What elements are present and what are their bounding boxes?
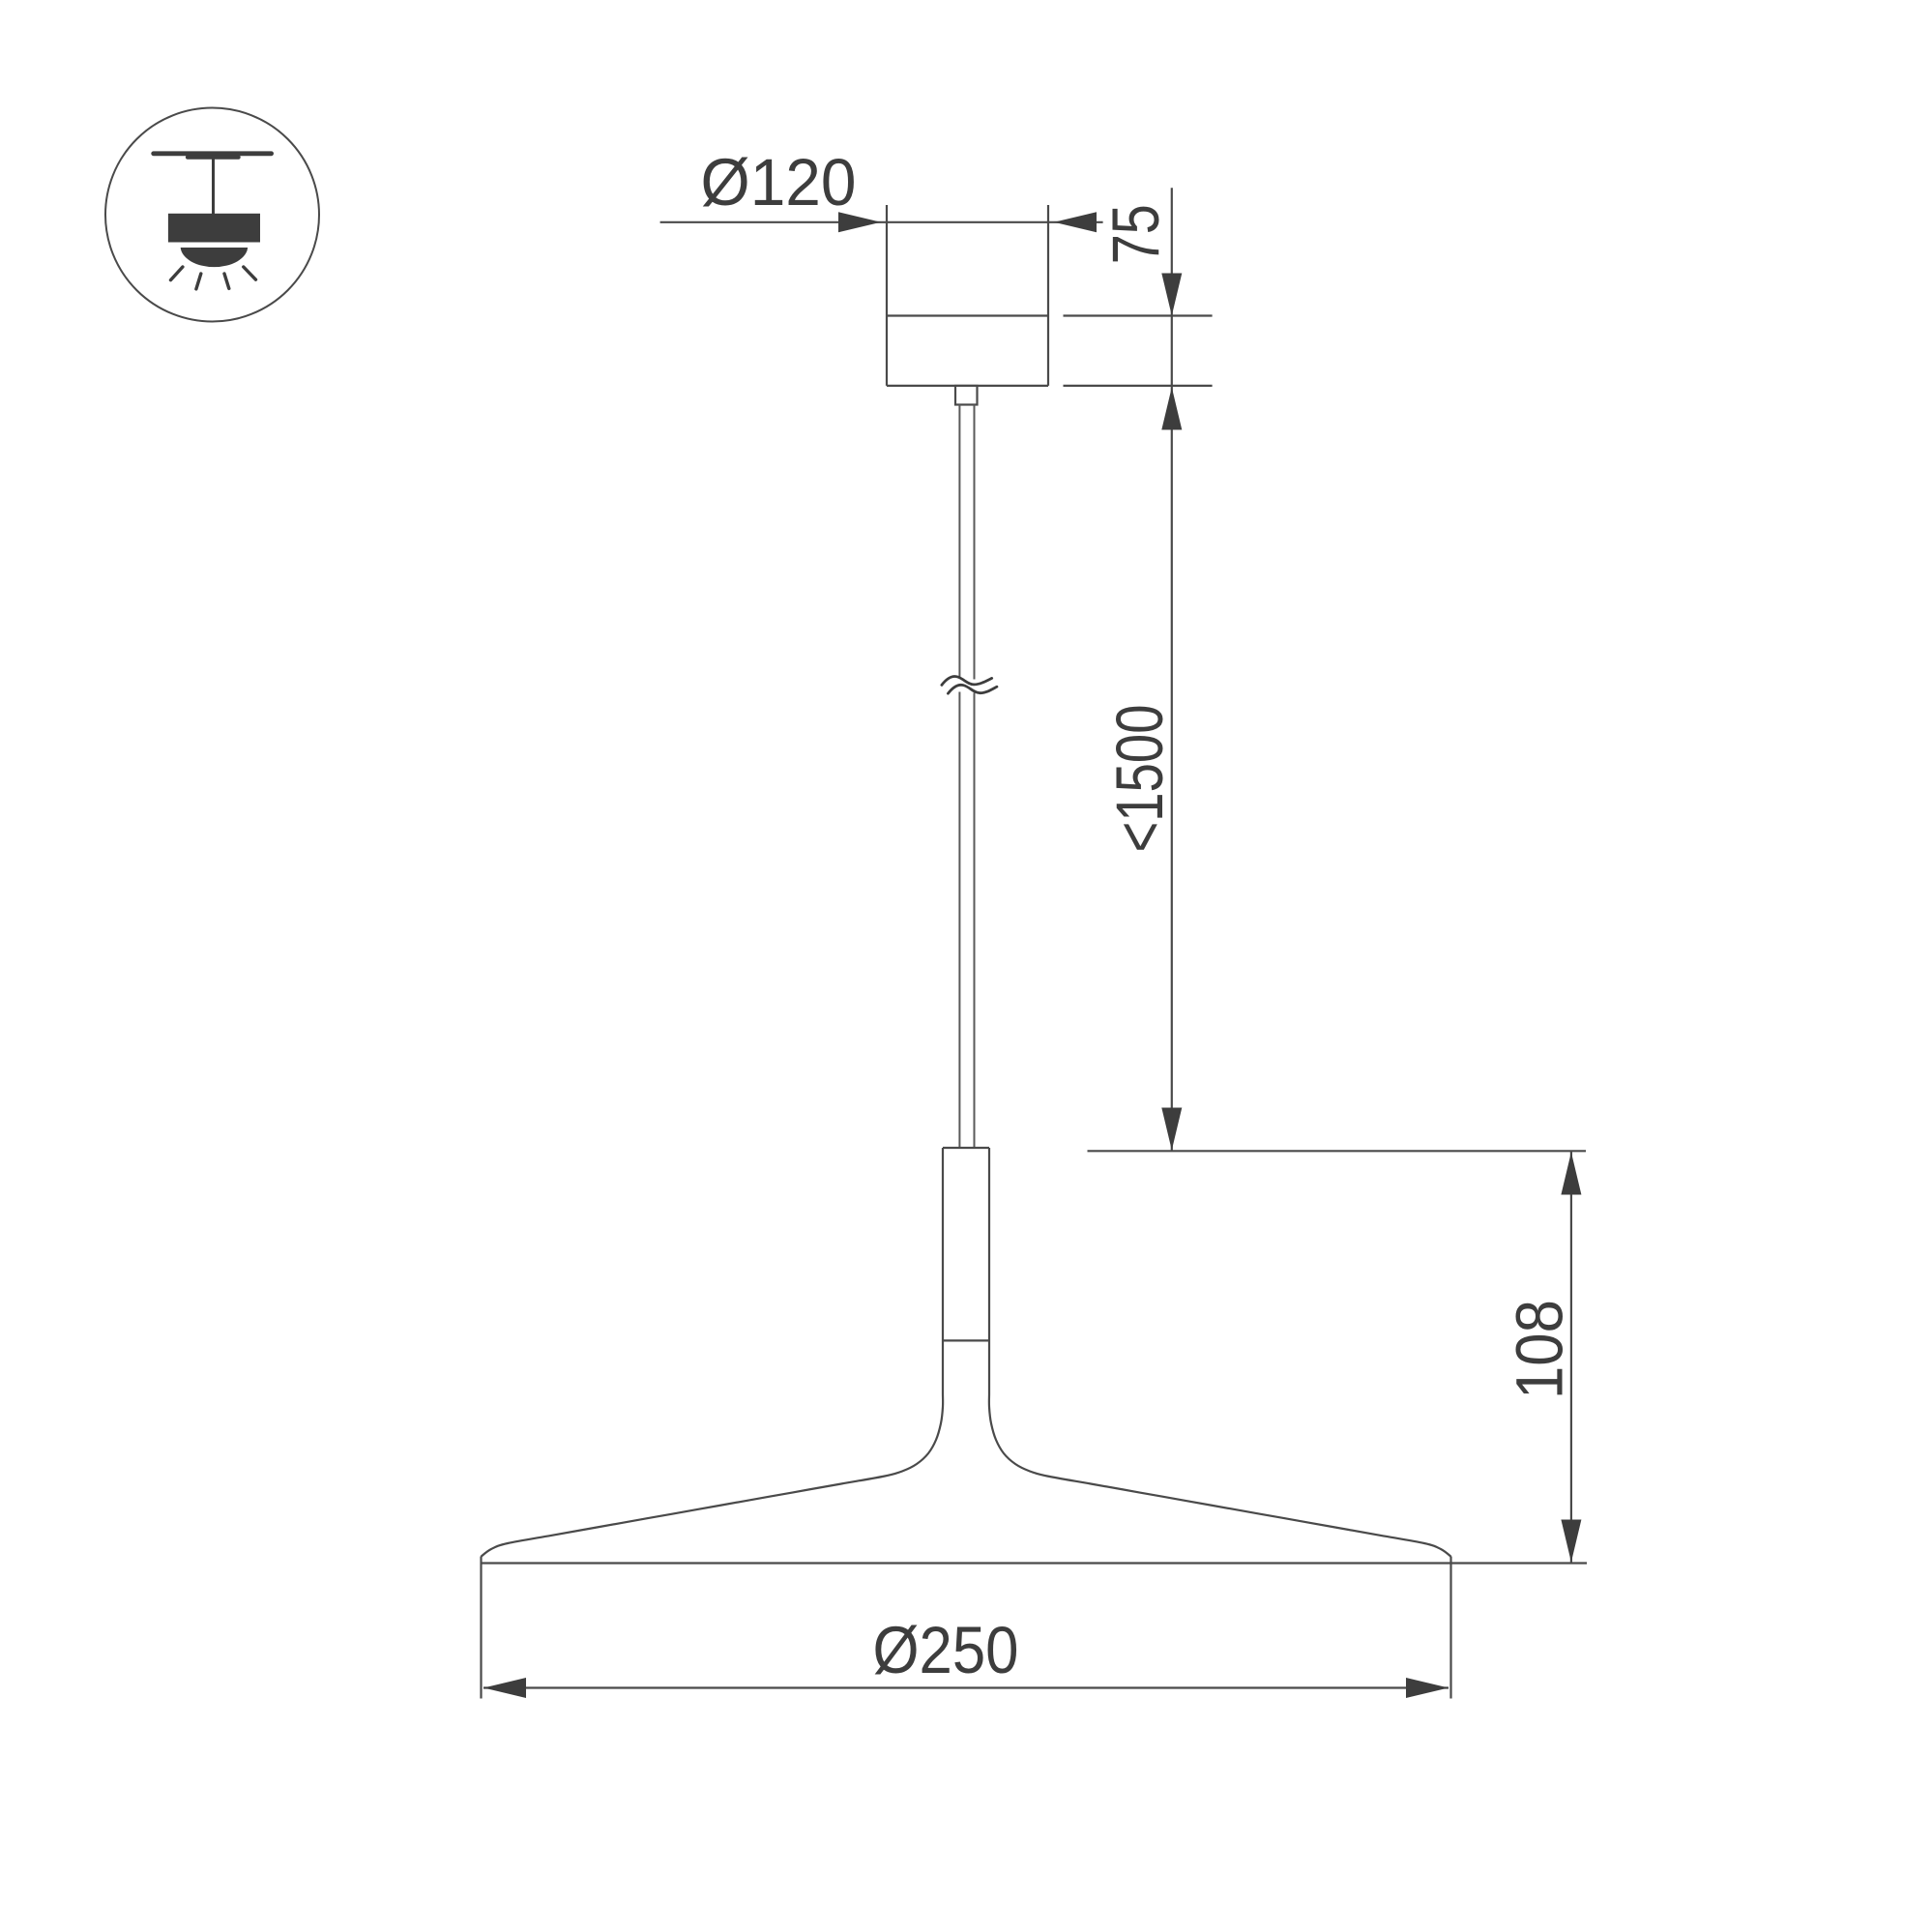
svg-text:Ø250: Ø250 <box>873 1613 1019 1687</box>
svg-text:<1500: <1500 <box>1102 705 1177 853</box>
svg-text:108: 108 <box>1503 1300 1577 1399</box>
svg-text:75: 75 <box>1098 204 1173 264</box>
svg-text:Ø120: Ø120 <box>701 145 857 220</box>
